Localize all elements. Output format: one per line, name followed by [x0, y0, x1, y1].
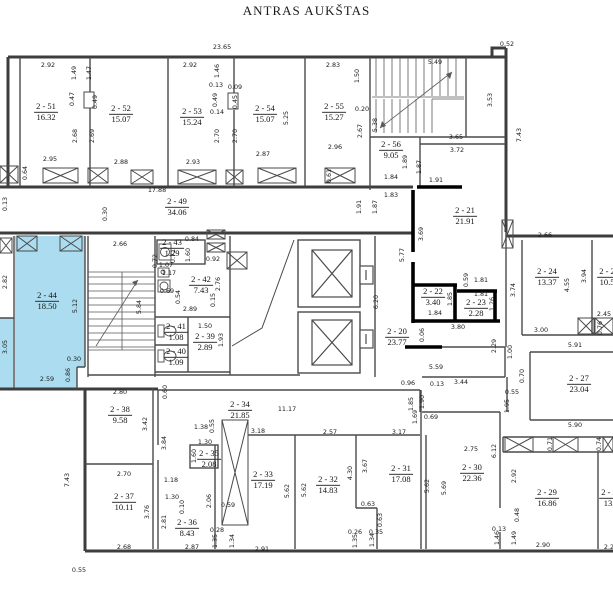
dimension-label: 5.38 [372, 118, 378, 132]
room-label-2-42: 2 - 427.43 [189, 275, 213, 295]
room-number: 2 - 37 [112, 492, 136, 503]
room-label-2-54: 2 - 5415.07 [253, 104, 277, 124]
dimension-label: 2.95 [43, 156, 57, 162]
dimension-label: 0.59 [221, 502, 235, 508]
room-number: 2 - 36 [175, 518, 199, 529]
dimension-label: 3.80 [451, 324, 465, 330]
labels-layer: 23.650.522.922.922.835.491.491.471.461.5… [0, 0, 613, 600]
dimension-label: 0.96 [401, 380, 415, 386]
dimension-label: 0.28 [210, 527, 224, 533]
dimension-label: 1.93 [218, 333, 224, 347]
dimension-label: 5.25 [283, 111, 289, 125]
room-area: 15.24 [180, 118, 204, 127]
dimension-label: 1.49 [71, 66, 77, 80]
room-label-2-22: 2 - 223.40 [421, 287, 445, 307]
dimension-label: 2.91 [255, 546, 269, 552]
dimension-label: 1.81 [474, 277, 488, 283]
room-area: 14.83 [316, 486, 340, 495]
room-area: 18.50 [35, 302, 59, 311]
dimension-label: 1.83 [384, 192, 398, 198]
dimension-label: 1.91 [356, 200, 362, 214]
room-label-2-40: 2 - 401.09 [164, 347, 188, 367]
dimension-label: 1.35 [212, 534, 218, 548]
room-area: 9.58 [108, 416, 132, 425]
floor-plan: ANTRAS AUKŠTAS [0, 0, 613, 600]
room-number: 2 - 51 [34, 102, 58, 113]
dimension-label: 1.85 [447, 292, 453, 306]
room-number: 2 - 2 [597, 267, 613, 278]
dimension-label: 0.14 [210, 109, 224, 115]
room-label-2-27: 2 - 2723.04 [567, 374, 591, 394]
dimension-label: 3.74 [510, 283, 516, 297]
dimension-label: 2.87 [256, 151, 270, 157]
dimension-label: 1.60 [185, 248, 191, 262]
room-area: 2.89 [193, 343, 217, 352]
room-label-2-30: 2 - 3022.36 [460, 463, 484, 483]
room-label-2-38: 2 - 389.58 [108, 405, 132, 425]
dimension-label: 0.30 [102, 207, 108, 221]
dimension-label: 4.30 [347, 466, 353, 480]
room-number: 2 - 24 [535, 267, 559, 278]
dimension-label: 5.90 [568, 422, 582, 428]
room-number: 2 - 29 [535, 488, 559, 499]
room-area: 22.36 [460, 474, 484, 483]
dimension-label: 1.18 [164, 477, 178, 483]
room-number: 2 - 34 [228, 400, 252, 411]
dimension-label: 3.65 [449, 134, 463, 140]
dimension-label: 2.70 [117, 471, 131, 477]
room-label-2-35: 2 - 352.08 [197, 449, 221, 469]
dimension-label: 0.10 [179, 500, 185, 514]
room-label-2-29: 2 - 2916.86 [535, 488, 559, 508]
room-number: 2 - 56 [379, 140, 403, 151]
room-label-2-36: 2 - 368.43 [175, 518, 199, 538]
dimension-label: 1.84 [384, 174, 398, 180]
room-area: 10.11 [112, 503, 136, 512]
room-number: 2 - 39 [193, 332, 217, 343]
dimension-label: 2.76 [215, 277, 221, 291]
room-label-2-49: 2 - 4934.06 [165, 197, 189, 217]
dimension-label: 0.86 [65, 368, 71, 382]
dimension-label: 2.70 [214, 129, 220, 143]
room-label-2-32: 2 - 3214.83 [316, 475, 340, 495]
room-number: 2 - 35 [197, 449, 221, 460]
dimension-label: 2.59 [40, 376, 54, 382]
dimension-label: 5.69 [441, 481, 447, 495]
room-area: 17.19 [251, 481, 275, 490]
dimension-label: 1.00 [507, 345, 513, 359]
room-label-2-43: 2 - 431.29 [160, 238, 184, 258]
dimension-label: 0.45 [232, 95, 238, 109]
dimension-label: 2.92 [183, 62, 197, 68]
dimension-label: 1.50 [198, 323, 212, 329]
dimension-label: 5.91 [568, 342, 582, 348]
dimension-label: 2.83 [326, 62, 340, 68]
dimension-label: 1.50 [354, 69, 360, 83]
room-number: 2 - 42 [189, 275, 213, 286]
room-number: 2 - 2 [599, 488, 613, 499]
dimension-label: 0.55 [505, 389, 519, 395]
room-area: 9.05 [379, 151, 403, 160]
dimension-label: 5.12 [72, 299, 78, 313]
dimension-label: 2.80 [113, 389, 127, 395]
dimension-label: 0.52 [500, 41, 514, 47]
room-area: 3.40 [421, 298, 445, 307]
dimension-label: 2.93 [186, 159, 200, 165]
dimension-label: 0.20 [355, 106, 369, 112]
dimension-label: 6.20 [373, 295, 379, 309]
dimension-label: 3.94 [581, 269, 587, 283]
dimension-label: 0.63 [377, 513, 383, 527]
room-area: 1.09 [164, 358, 188, 367]
room-number: 2 - 40 [164, 347, 188, 358]
dimension-label: 3.00 [534, 327, 548, 333]
room-area: 8.43 [175, 529, 199, 538]
dimension-label: 2.88 [114, 159, 128, 165]
dimension-label: 3.53 [487, 93, 493, 107]
room-area: 7.43 [189, 286, 213, 295]
room-label-2-37: 2 - 3710.11 [112, 492, 136, 512]
dimension-label: 0.06 [419, 328, 425, 342]
room-area: 23.77 [385, 338, 409, 347]
dimension-label: 3.42 [142, 417, 148, 431]
dimension-label: 0.76 [597, 321, 603, 335]
dimension-label: 1.38 [194, 424, 208, 430]
dimension-label: 7.43 [516, 128, 522, 142]
dimension-label: 2.68 [72, 129, 78, 143]
room-label-2-2: 2 - 213. [599, 488, 613, 508]
dimension-label: 7.43 [64, 473, 70, 487]
room-label-2-56: 2 - 569.05 [379, 140, 403, 160]
dimension-label: 2.81 [161, 515, 167, 529]
dimension-label: 1.91 [429, 177, 443, 183]
dimension-label: 3.69 [418, 227, 424, 241]
dimension-label: 1.46 [214, 64, 220, 78]
dimension-label: 5.59 [429, 364, 443, 370]
dimension-label: 2.68 [117, 544, 131, 550]
dimension-label: 1.46 [494, 531, 500, 545]
room-number: 2 - 49 [165, 197, 189, 208]
dimension-label: 5.62 [301, 483, 307, 497]
dimension-label: 1.07 [159, 262, 173, 268]
dimension-label: 6.12 [491, 444, 497, 458]
dimension-label: 1.34 [229, 534, 235, 548]
room-number: 2 - 44 [35, 291, 59, 302]
room-number: 2 - 53 [180, 107, 204, 118]
dimension-label: 0.69 [160, 288, 174, 294]
dimension-label: 5.62 [284, 484, 290, 498]
dimension-label: 3.17 [392, 429, 406, 435]
room-label-2-33: 2 - 3317.19 [251, 470, 275, 490]
dimension-label: 0.47 [69, 92, 75, 106]
room-number: 2 - 32 [316, 475, 340, 486]
room-label-2-21: 2 - 2121.91 [453, 206, 477, 226]
dimension-label: 0.54 [175, 290, 181, 304]
room-area: 21.91 [453, 217, 477, 226]
room-label-2-51: 2 - 5116.32 [34, 102, 58, 122]
dimension-label: 2.2 [604, 544, 613, 550]
dimension-label: 1.17 [162, 270, 176, 276]
dimension-label: 2.57 [323, 429, 337, 435]
dimension-label: 0.84 [185, 236, 199, 242]
room-area: 34.06 [165, 208, 189, 217]
dimension-label: 3.44 [454, 379, 468, 385]
room-area: 15.07 [253, 115, 277, 124]
dimension-label: 0.48 [514, 508, 520, 522]
room-number: 2 - 33 [251, 470, 275, 481]
dimension-label: 0.49 [212, 93, 218, 107]
room-area: 2.28 [464, 309, 488, 318]
room-number: 2 - 23 [464, 298, 488, 309]
dimension-label: 1.69 [412, 410, 418, 424]
room-number: 2 - 30 [460, 463, 484, 474]
room-number: 2 - 20 [385, 327, 409, 338]
dimension-label: 2.67 [357, 124, 363, 138]
dimension-label: 2.92 [41, 62, 55, 68]
room-number: 2 - 31 [389, 464, 413, 475]
room-label-2-31: 2 - 3117.08 [389, 464, 413, 484]
dimension-label: 17.88 [148, 187, 166, 193]
dimension-label: 2.92 [511, 469, 517, 483]
dimension-label: 0.71 [547, 437, 553, 451]
room-label-2-52: 2 - 5215.07 [109, 104, 133, 124]
room-number: 2 - 54 [253, 104, 277, 115]
dimension-label: 1.30 [198, 439, 212, 445]
dimension-label: 2.69 [89, 129, 95, 143]
room-label-2-20: 2 - 2023.77 [385, 327, 409, 347]
dimension-label: 0.61 [326, 169, 332, 183]
dimension-label: 1.87 [372, 200, 378, 214]
dimension-label: 0.70 [519, 369, 525, 383]
dimension-label: 3.67 [362, 459, 368, 473]
dimension-label: 0.64 [22, 166, 28, 180]
dimension-label: 0.30 [67, 356, 81, 362]
dimension-label: 5.49 [428, 59, 442, 65]
dimension-label: 5.62 [424, 479, 430, 493]
room-area: 1.29 [160, 249, 184, 258]
dimension-label: 1.90 [419, 395, 425, 409]
dimension-label: 4.55 [564, 278, 570, 292]
room-area: 23.04 [567, 385, 591, 394]
dimension-label: 2.45 [597, 311, 611, 317]
room-area: 10.5 [597, 278, 613, 287]
room-label-2-41: 2 - 411.08 [164, 322, 188, 342]
room-area: 1.08 [164, 333, 188, 342]
room-number: 2 - 22 [421, 287, 445, 298]
dimension-label: 0.92 [206, 256, 220, 262]
dimension-label: 0.49 [92, 95, 98, 109]
room-label-2-23: 2 - 232.28 [464, 298, 488, 318]
dimension-label: 2.82 [2, 275, 8, 289]
room-number: 2 - 43 [160, 238, 184, 249]
room-area: 13. [599, 499, 613, 508]
dimension-label: 1.84 [428, 310, 442, 316]
room-label-2-2: 2 - 210.5 [597, 267, 613, 287]
room-label-2-44: 2 - 4418.50 [35, 291, 59, 311]
dimension-label: 0.09 [228, 84, 242, 90]
dimension-label: 2.70 [232, 129, 238, 143]
dimension-label: 0.55 [72, 567, 86, 573]
dimension-label: 5.84 [136, 300, 142, 314]
room-area: 15.07 [109, 115, 133, 124]
room-area: 16.32 [34, 113, 58, 122]
dimension-label: 1.49 [511, 531, 517, 545]
dimension-label: 3.05 [2, 340, 8, 354]
dimension-label: 0.60 [162, 385, 168, 399]
dimension-label: 0.72 [152, 254, 158, 268]
dimension-label: 0.74 [596, 437, 602, 451]
dimension-label: 0.63 [361, 501, 375, 507]
room-number: 2 - 27 [567, 374, 591, 385]
room-label-2-55: 2 - 5515.27 [322, 102, 346, 122]
room-area: 21.85 [228, 411, 252, 420]
dimension-label: 0.69 [424, 414, 438, 420]
dimension-label: 0.59 [463, 273, 469, 287]
room-label-2-53: 2 - 5315.24 [180, 107, 204, 127]
room-number: 2 - 41 [164, 322, 188, 333]
dimension-label: 1.87 [416, 160, 422, 174]
dimension-label: 1.26 [489, 297, 495, 311]
room-area: 17.08 [389, 475, 413, 484]
room-number: 2 - 52 [109, 104, 133, 115]
dimension-label: 2.90 [536, 542, 550, 548]
dimension-label: 3.84 [161, 436, 167, 450]
dimension-label: 0.13 [209, 82, 223, 88]
dimension-label: 2.96 [328, 144, 342, 150]
dimension-label: 2.89 [183, 306, 197, 312]
dimension-label: 2.06 [206, 494, 212, 508]
dimension-label: 0.13 [430, 381, 444, 387]
room-label-2-24: 2 - 2413.37 [535, 267, 559, 287]
dimension-label: 0.55 [209, 419, 215, 433]
dimension-label: 0.13 [2, 197, 8, 211]
dimension-label: 2.29 [491, 339, 497, 353]
dimension-label: 11.17 [278, 406, 296, 412]
dimension-label: 1.34 [369, 533, 375, 547]
dimension-label: 3.76 [144, 505, 150, 519]
room-area: 13.37 [535, 278, 559, 287]
room-area: 15.27 [322, 113, 346, 122]
dimension-label: 2.75 [464, 446, 478, 452]
dimension-label: 2.87 [185, 544, 199, 550]
room-number: 2 - 55 [322, 102, 346, 113]
dimension-label: 2.66 [538, 232, 552, 238]
room-number: 2 - 38 [108, 405, 132, 416]
dimension-label: 1.95 [504, 399, 510, 413]
room-label-2-39: 2 - 392.89 [193, 332, 217, 352]
dimension-label: 3.72 [450, 147, 464, 153]
dimension-label: 5.77 [399, 248, 405, 262]
dimension-label: 23.65 [213, 44, 231, 50]
room-number: 2 - 21 [453, 206, 477, 217]
dimension-label: 1.47 [86, 66, 92, 80]
room-label-2-34: 2 - 3421.85 [228, 400, 252, 420]
dimension-label: 2.66 [113, 241, 127, 247]
dimension-label: 3.18 [251, 428, 265, 434]
room-area: 16.86 [535, 499, 559, 508]
room-area: 2.08 [197, 460, 221, 469]
dimension-label: 1.35 [352, 534, 358, 548]
